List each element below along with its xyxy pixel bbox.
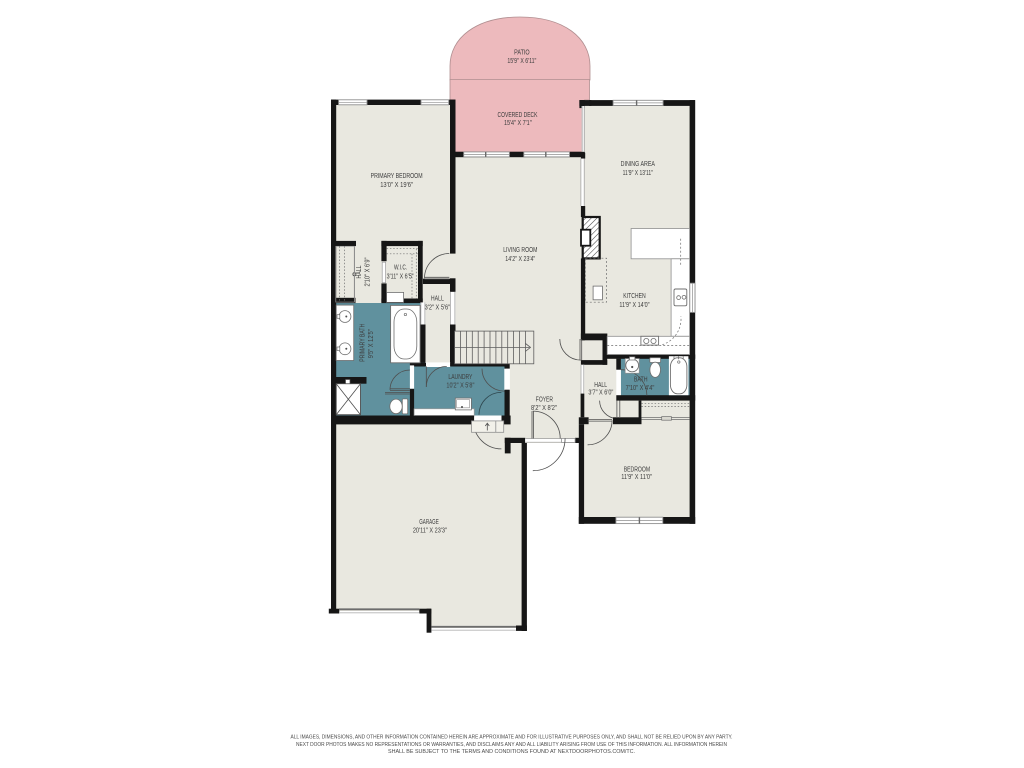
svg-text:LAUNDRY: LAUNDRY	[448, 372, 472, 381]
svg-text:11'9" X 13'11": 11'9" X 13'11"	[623, 170, 654, 177]
svg-text:SHALL BE SUBJECT TO THE TERMS: SHALL BE SUBJECT TO THE TERMS AND CONDIT…	[388, 749, 635, 755]
svg-text:W.I.C.: W.I.C.	[394, 263, 407, 272]
svg-text:3'11" X 6'5": 3'11" X 6'5"	[387, 273, 414, 280]
svg-text:PRIMARY BATH: PRIMARY BATH	[357, 324, 366, 362]
svg-text:11'9" X 11'0": 11'9" X 11'0"	[621, 474, 652, 481]
svg-text:11'9" X 14'0": 11'9" X 14'0"	[619, 302, 650, 309]
svg-text:NEXT DOOR PHOTOS MAKES NO REPR: NEXT DOOR PHOTOS MAKES NO REPRESENTATION…	[296, 742, 727, 748]
svg-text:9'5" X 12'5": 9'5" X 12'5"	[368, 329, 375, 358]
svg-text:PRIMARY BEDROOM: PRIMARY BEDROOM	[371, 171, 423, 180]
svg-text:2'10" X 6'9": 2'10" X 6'9"	[365, 257, 372, 286]
svg-text:20'11" X 23'3": 20'11" X 23'3"	[413, 527, 448, 534]
svg-text:3'2" X 5'6": 3'2" X 5'6"	[425, 304, 451, 311]
svg-text:BATH: BATH	[634, 374, 648, 383]
svg-text:13'0" X 19'6": 13'0" X 19'6"	[380, 182, 413, 189]
svg-text:3'7" X 6'0": 3'7" X 6'0"	[588, 389, 613, 396]
svg-text:8'2" X 8'2": 8'2" X 8'2"	[531, 405, 557, 412]
svg-text:PATIO: PATIO	[514, 48, 530, 57]
svg-text:14'2" X 23'4": 14'2" X 23'4"	[505, 256, 535, 263]
svg-text:GARAGE: GARAGE	[419, 517, 439, 526]
svg-text:HALL: HALL	[354, 266, 363, 279]
svg-text:15'4" X 7'1": 15'4" X 7'1"	[504, 120, 532, 127]
svg-text:HALL: HALL	[594, 380, 607, 389]
svg-text:7'10" X 4'4": 7'10" X 4'4"	[626, 385, 655, 392]
svg-text:BEDROOM: BEDROOM	[624, 464, 650, 473]
svg-text:10'2" X 5'8": 10'2" X 5'8"	[446, 383, 474, 390]
svg-text:COVERED DECK: COVERED DECK	[498, 110, 538, 119]
svg-text:LIVING ROOM: LIVING ROOM	[503, 245, 537, 254]
svg-text:15'9" X 6'11": 15'9" X 6'11"	[507, 58, 536, 65]
svg-text:KITCHEN: KITCHEN	[623, 291, 645, 300]
svg-text:DINING AREA: DINING AREA	[621, 159, 655, 168]
svg-text:ALL IMAGES, DIMENSIONS, AND OT: ALL IMAGES, DIMENSIONS, AND OTHER INFORM…	[291, 735, 733, 741]
svg-text:FOYER: FOYER	[536, 394, 553, 403]
svg-text:HALL: HALL	[431, 294, 444, 303]
